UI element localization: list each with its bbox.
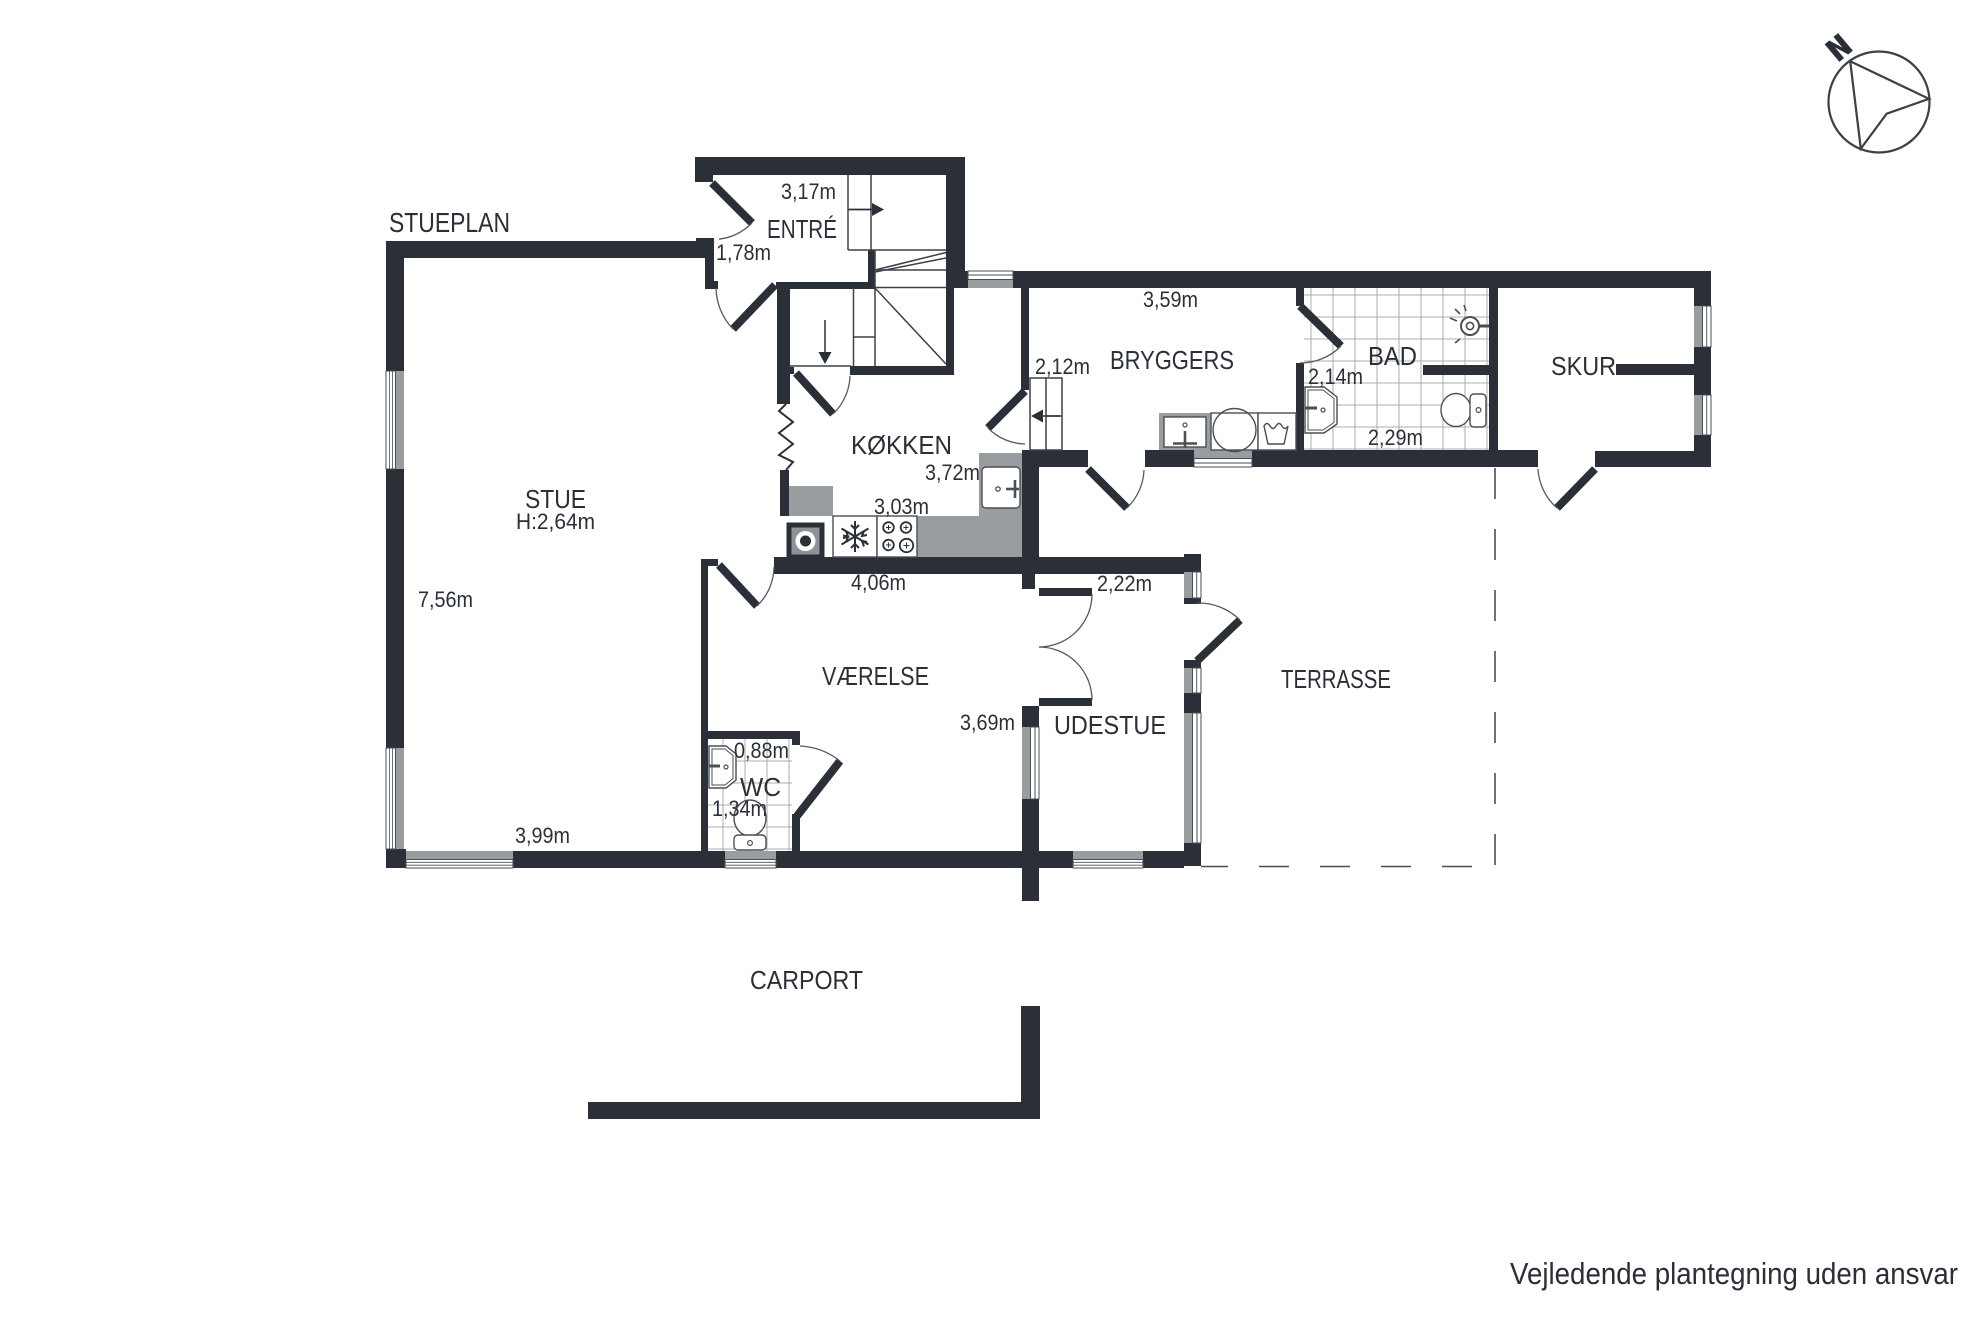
svg-text:3,03m: 3,03m: [874, 494, 929, 519]
svg-text:STUEPLAN: STUEPLAN: [389, 207, 510, 238]
svg-text:H:2,64m: H:2,64m: [516, 509, 595, 534]
svg-text:ENTRÉ: ENTRÉ: [767, 214, 837, 244]
svg-text:VÆRELSE: VÆRELSE: [822, 661, 929, 691]
svg-text:4,06m: 4,06m: [851, 570, 906, 595]
svg-text:BAD: BAD: [1368, 341, 1417, 371]
svg-text:TERRASSE: TERRASSE: [1281, 664, 1391, 694]
svg-text:7,56m: 7,56m: [418, 587, 473, 612]
svg-text:3,99m: 3,99m: [515, 823, 570, 848]
svg-text:SKUR: SKUR: [1551, 351, 1616, 381]
svg-text:UDESTUE: UDESTUE: [1054, 710, 1166, 740]
svg-text:0,88m: 0,88m: [734, 738, 789, 763]
svg-text:KØKKEN: KØKKEN: [851, 430, 952, 460]
svg-text:CARPORT: CARPORT: [750, 965, 863, 995]
svg-text:3,72m: 3,72m: [925, 460, 980, 485]
svg-text:2,12m: 2,12m: [1035, 354, 1090, 379]
svg-text:1,34m: 1,34m: [712, 796, 767, 821]
svg-text:2,22m: 2,22m: [1097, 571, 1152, 596]
svg-text:2,14m: 2,14m: [1308, 364, 1363, 389]
svg-text:1,78m: 1,78m: [716, 240, 771, 265]
svg-text:Vejledende plantegning uden an: Vejledende plantegning uden ansvar: [1510, 1256, 1958, 1291]
svg-text:3,59m: 3,59m: [1143, 287, 1198, 312]
svg-text:2,29m: 2,29m: [1368, 425, 1423, 450]
svg-text:3,69m: 3,69m: [960, 710, 1015, 735]
svg-text:BRYGGERS: BRYGGERS: [1110, 345, 1234, 375]
svg-text:3,17m: 3,17m: [781, 179, 836, 204]
